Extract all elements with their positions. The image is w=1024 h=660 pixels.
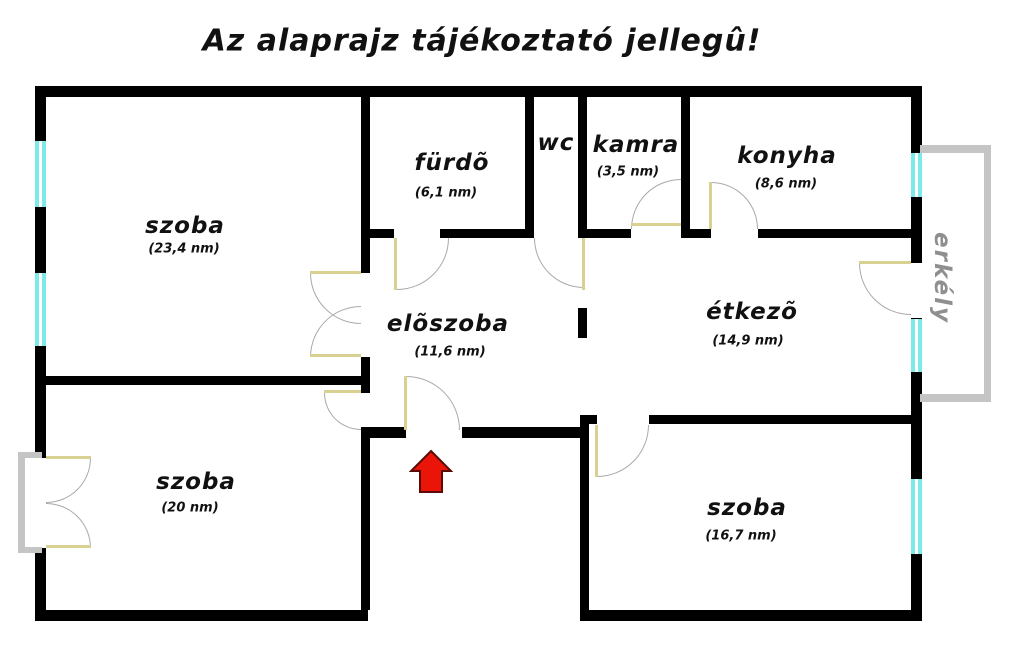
door-leaf-entrance xyxy=(404,376,407,430)
wall-interior xyxy=(361,97,370,273)
wall-interior xyxy=(758,229,911,238)
wall-left xyxy=(35,347,46,458)
wall-interior xyxy=(361,357,370,393)
room-area-eloszoba: (11,6 nm) xyxy=(414,345,485,360)
wall-interior xyxy=(690,229,711,238)
wall-interior-stub xyxy=(578,308,587,338)
room-area-szoba-nagy: (23,4 nm) xyxy=(148,242,219,257)
door-leaf xyxy=(46,545,91,548)
door-leaf xyxy=(310,354,361,357)
window xyxy=(911,318,922,373)
door-leaf-balcony xyxy=(859,261,911,264)
door-arc xyxy=(597,425,649,477)
wall-interior xyxy=(361,427,370,610)
wall-interior xyxy=(580,415,589,610)
door-leaf xyxy=(631,223,681,226)
floor-plan: Az alaprajz tájékoztató jellegû! xyxy=(0,0,1024,660)
door-leaf xyxy=(46,456,91,459)
door-leaf xyxy=(310,271,361,274)
door-arc xyxy=(324,393,361,430)
door-leaf xyxy=(595,425,598,477)
wall-interior xyxy=(649,415,911,424)
outer-door-frame xyxy=(18,547,42,553)
wall-left xyxy=(35,86,46,140)
door-arc xyxy=(534,238,584,288)
plan-disclaimer-title: Az alaprajz tájékoztató jellegû! xyxy=(203,24,762,59)
room-label-szoba-nagy: szoba xyxy=(145,213,225,239)
outer-door-frame xyxy=(18,452,42,458)
red-arrow-up-icon xyxy=(409,449,453,495)
window xyxy=(911,478,922,555)
wall-bottom-right xyxy=(580,610,922,621)
room-area-szoba-bal: (20 nm) xyxy=(161,501,218,516)
door-arc-balcony xyxy=(859,263,911,315)
door-arc xyxy=(310,306,361,357)
wall-interior xyxy=(369,229,394,238)
door-leaf xyxy=(709,182,712,229)
door-arc xyxy=(46,503,91,548)
room-area-szoba-jobb: (16,7 nm) xyxy=(705,529,776,544)
room-label-wc: wc xyxy=(538,130,575,156)
room-label-szoba-bal: szoba xyxy=(156,469,236,495)
door-arc xyxy=(631,179,681,229)
outer-door-frame xyxy=(18,452,25,553)
window xyxy=(35,140,46,208)
door-arc xyxy=(46,458,91,503)
wall-interior xyxy=(681,97,690,238)
wall-right xyxy=(911,198,922,263)
door-leaf xyxy=(394,238,397,290)
wall-interior xyxy=(578,97,587,238)
wall-interior xyxy=(587,229,631,238)
wall-right xyxy=(911,373,922,478)
door-leaf xyxy=(582,238,585,290)
room-label-kamra: kamra xyxy=(593,132,680,158)
window xyxy=(911,152,922,198)
wall-interior xyxy=(589,415,597,424)
room-area-kamra: (3,5 nm) xyxy=(597,165,659,180)
room-label-eloszoba: elõszoba xyxy=(387,311,509,337)
door-leaf xyxy=(324,390,361,393)
balcony-outline xyxy=(920,145,991,153)
window xyxy=(35,272,46,347)
wall-entrance-side xyxy=(462,427,588,438)
room-label-szoba-jobb: szoba xyxy=(707,495,787,521)
wall-interior xyxy=(440,229,525,238)
wall-room-divider xyxy=(46,376,361,385)
door-arc-entrance xyxy=(406,376,460,430)
room-area-etkezo: (14,9 nm) xyxy=(712,334,783,349)
room-area-furdo: (6,1 nm) xyxy=(415,186,477,201)
room-label-konyha: konyha xyxy=(737,143,837,169)
room-label-erkely: erkély xyxy=(929,232,955,324)
wall-right xyxy=(911,86,922,152)
door-arc xyxy=(397,238,449,290)
wall-right xyxy=(911,555,922,610)
wall-interior xyxy=(525,97,534,238)
room-area-konyha: (8,6 nm) xyxy=(755,177,817,192)
wall-bottom-left xyxy=(35,610,368,621)
room-label-etkezo: étkezõ xyxy=(706,299,798,325)
wall-left xyxy=(35,208,46,272)
room-label-furdo: fürdõ xyxy=(415,150,490,176)
wall-top xyxy=(35,86,922,97)
door-arc xyxy=(711,182,758,229)
balcony-outline xyxy=(920,394,991,402)
balcony-outline xyxy=(984,145,991,402)
